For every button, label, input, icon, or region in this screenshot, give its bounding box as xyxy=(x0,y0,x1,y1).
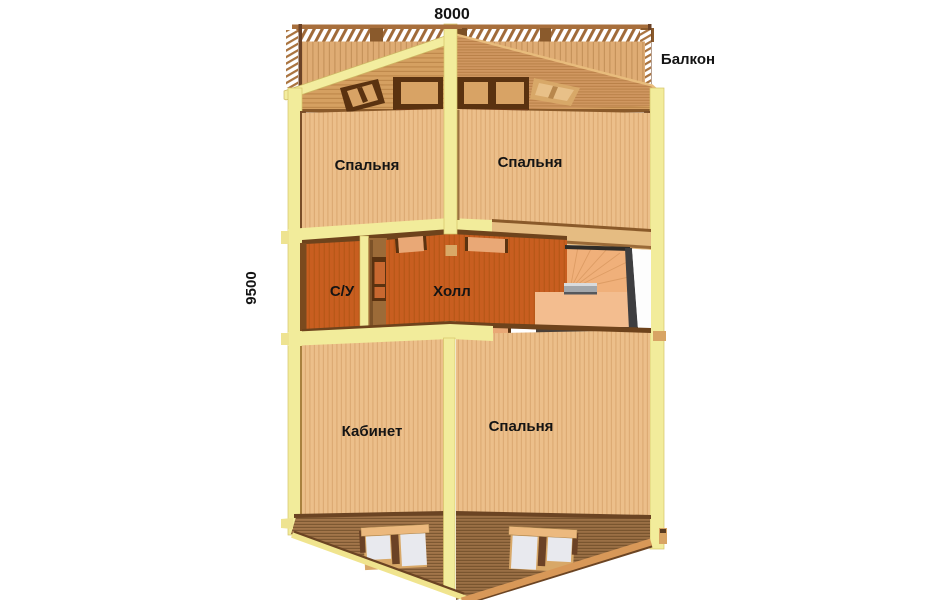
svg-text:С/У: С/У xyxy=(330,283,355,300)
svg-text:9500: 9500 xyxy=(243,271,260,304)
svg-text:Кабинет: Кабинет xyxy=(342,423,403,440)
svg-text:Спальня: Спальня xyxy=(489,418,554,435)
svg-text:Балкон: Балкон xyxy=(661,51,715,68)
svg-text:Спальня: Спальня xyxy=(498,154,563,171)
svg-text:8000: 8000 xyxy=(434,6,470,23)
svg-text:Спальня: Спальня xyxy=(335,157,400,174)
svg-text:Холл: Холл xyxy=(433,283,471,300)
